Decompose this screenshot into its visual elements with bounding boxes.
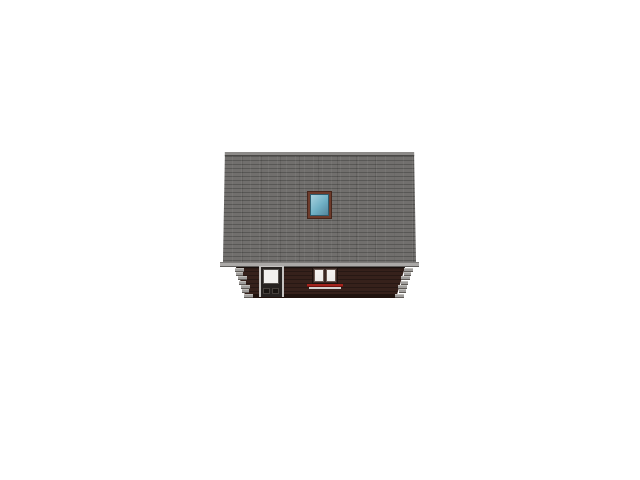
door-panel: [272, 288, 279, 294]
window-pane: [326, 269, 336, 282]
door-glass: [263, 269, 279, 284]
skylight-glass: [310, 194, 329, 216]
log-end: [244, 294, 253, 298]
window-pane: [314, 269, 324, 282]
log-end: [395, 294, 404, 298]
entry-door: [259, 266, 284, 297]
double-window: [312, 267, 338, 284]
ridge-cap: [223, 152, 416, 156]
roof-skylight: [307, 191, 332, 219]
render-viewport: [0, 0, 640, 480]
door-panel: [263, 288, 270, 294]
window-sill-base: [309, 287, 341, 289]
